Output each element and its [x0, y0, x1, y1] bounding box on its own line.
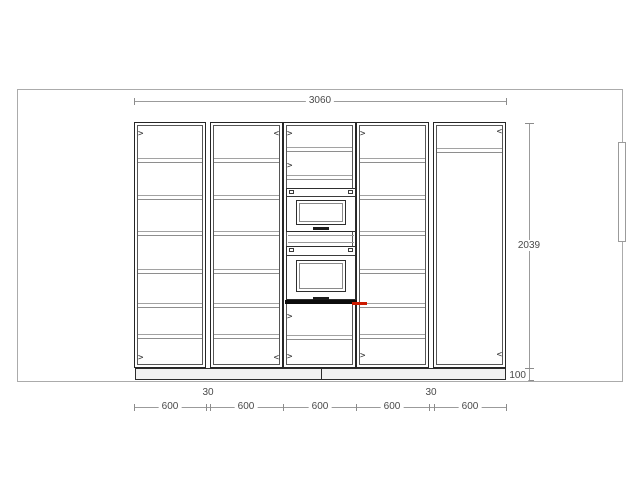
oven-housing-cabinet[interactable]: >>>> [283, 122, 356, 368]
compact-oven[interactable] [286, 188, 356, 232]
hinge-arrow-icon: > [287, 353, 292, 362]
shelf-line [214, 269, 279, 274]
dim-line-height [529, 123, 530, 380]
dim-tick [206, 404, 207, 411]
dim-cabinet-width-label: 600 [309, 401, 332, 412]
built-in-oven[interactable] [286, 246, 356, 300]
hinge-arrow-icon: < [274, 130, 279, 139]
shelf-line [214, 303, 279, 308]
tall-cabinet-1[interactable]: >> [134, 122, 206, 368]
tall-cabinet-4[interactable]: << [433, 122, 506, 368]
oven-control-strip [287, 247, 355, 256]
hinge-arrow-icon: > [360, 352, 365, 361]
appliance-gap-line [288, 242, 354, 243]
selection-marker [352, 302, 367, 305]
dim-cabinet-width-label: 600 [459, 401, 482, 412]
compact-oven-control-strip [287, 189, 355, 197]
shelf-line [287, 335, 352, 340]
shelf-line [138, 269, 202, 274]
compact-oven-window [296, 200, 346, 225]
hinge-arrow-icon: > [287, 130, 292, 139]
shelf-line [138, 195, 202, 200]
hinge-arrow-icon: > [138, 130, 143, 139]
compact-oven-handle [313, 227, 329, 230]
shelf-line [214, 231, 279, 236]
dim-cabinet-width-label: 600 [381, 401, 404, 412]
tall-cabinet-4-door-front [436, 125, 503, 365]
oven-window [296, 260, 346, 292]
appliance-gap-line [288, 235, 354, 236]
dim-tick [283, 404, 284, 411]
shelf-line [214, 158, 279, 163]
shelf-line [360, 303, 425, 308]
dim-tick [134, 404, 135, 411]
tall-cabinet-2[interactable]: << [210, 122, 283, 368]
control-knob-icon [289, 190, 294, 194]
plinth-joint-line [321, 369, 322, 379]
shelf-line [287, 147, 352, 152]
dim-total-width-label: 3060 [306, 95, 334, 106]
hinge-arrow-icon: < [497, 128, 502, 137]
control-knob-icon [348, 248, 353, 252]
dim-height-label: 2039 [515, 240, 543, 251]
dim-tick [429, 404, 430, 411]
dim-tick [506, 98, 507, 105]
wall-window-symbol [618, 142, 626, 242]
oven-base-band [285, 300, 357, 304]
shelf-line [138, 231, 202, 236]
shelf-line [360, 195, 425, 200]
hinge-arrow-icon: < [497, 351, 502, 360]
dim-tick [210, 404, 211, 411]
hinge-arrow-icon: > [287, 162, 292, 171]
oven-housing-cabinet-door-front [286, 125, 353, 365]
dim-gap-label: 30 [199, 387, 216, 398]
shelf-line [287, 175, 352, 180]
dim-tick [506, 404, 507, 411]
shelf-line [138, 334, 202, 339]
shelf-line [214, 195, 279, 200]
elevation-canvas: >><<>>>>>><< 3060 2039 100 600 600 600 6… [0, 0, 640, 480]
shelf-line [437, 148, 502, 153]
shelf-line [214, 334, 279, 339]
hinge-arrow-icon: < [274, 354, 279, 363]
shelf-line [360, 231, 425, 236]
window-glass [299, 203, 343, 222]
dim-tick [434, 404, 435, 411]
shelf-line [138, 303, 202, 308]
dim-tick [356, 404, 357, 411]
dim-cabinet-width-label: 600 [159, 401, 182, 412]
dim-gap-label: 30 [422, 387, 439, 398]
window-glass [299, 263, 343, 289]
dim-tick [525, 368, 534, 369]
hinge-arrow-icon: > [287, 313, 292, 322]
shelf-line [138, 158, 202, 163]
hinge-arrow-icon: > [138, 354, 143, 363]
dim-plinth-label: 100 [507, 370, 528, 381]
control-knob-icon [289, 248, 294, 252]
control-knob-icon [348, 190, 353, 194]
dim-tick [134, 98, 135, 105]
shelf-line [360, 158, 425, 163]
shelf-line [360, 269, 425, 274]
dim-cabinet-width-label: 600 [235, 401, 258, 412]
hinge-arrow-icon: > [360, 130, 365, 139]
tall-cabinet-3[interactable]: >> [356, 122, 429, 368]
shelf-line [360, 334, 425, 339]
dim-tick [525, 123, 534, 124]
